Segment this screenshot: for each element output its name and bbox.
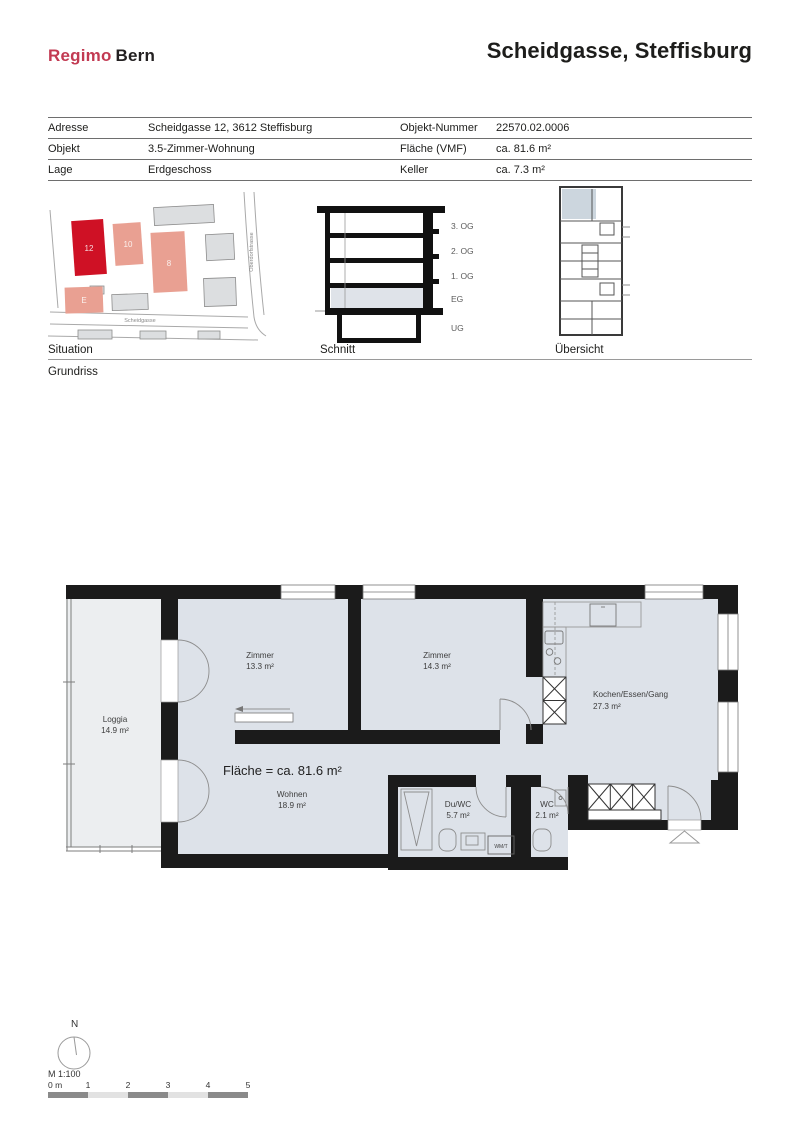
scale-bar-segment [128, 1092, 168, 1098]
situation-map: 12 10 8 E Scheidgasse Oberdorfstrasse [48, 190, 298, 348]
section-drawing: 3. OG 2. OG 1. OG EG UG [315, 200, 487, 350]
scale-tick: 0 m [48, 1080, 62, 1090]
floorplan-document-page: RegimoBern Scheidgasse, Steffisburg Adre… [0, 0, 800, 1126]
window-top-3 [645, 585, 703, 599]
floor-label-eg: EG [451, 294, 463, 304]
row-label: Keller [400, 164, 496, 176]
scale-tick: 4 [206, 1080, 211, 1090]
overview-highlighted-unit [562, 189, 596, 219]
room-area: 14.9 m² [101, 726, 129, 735]
room-name: Du/WC [445, 800, 471, 809]
row-label: Objekt-Nummer [400, 122, 496, 134]
french-door-opening-2 [161, 760, 178, 822]
info-table: Adresse Scheidgasse 12, 3612 Steffisburg… [48, 117, 752, 181]
scale-label: M 1:100 [48, 1069, 81, 1079]
schnitt-label: Schnitt [320, 344, 355, 356]
room-area: 14.3 m² [423, 662, 451, 671]
scale-tick: 1 [86, 1080, 91, 1090]
divider-line [48, 359, 752, 360]
floor-label-1og: 1. OG [451, 271, 474, 281]
scale-bar-segment [88, 1092, 128, 1098]
room-name: Zimmer [423, 651, 451, 660]
floor-label-ug: UG [451, 323, 464, 333]
row-value: 22570.02.0006 [496, 122, 752, 134]
row-value: 3.5-Zimmer-Wohnung [148, 143, 400, 155]
logo: RegimoBern [48, 46, 155, 66]
window-top-1 [281, 585, 335, 599]
building-10-label: 10 [124, 240, 133, 249]
overview-balcony-ticks [622, 227, 630, 295]
street-label-scheidgasse: Scheidgasse [124, 318, 156, 324]
room-area: 13.3 m² [246, 662, 274, 671]
scale-bar [48, 1092, 248, 1098]
row-value: ca. 81.6 m² [496, 143, 752, 155]
window-right-1 [718, 614, 738, 670]
building-12-label: 12 [85, 244, 94, 253]
page-title: Scheidgasse, Steffisburg [487, 38, 752, 64]
row-label: Fläche (VMF) [400, 143, 496, 155]
wardrobe [588, 784, 661, 820]
room-area: 2.1 m² [535, 811, 558, 820]
room-name: Wohnen [277, 790, 308, 799]
row-label: Adresse [48, 122, 148, 134]
room-name: Loggia [103, 715, 128, 724]
floor-label-2og: 2. OG [451, 246, 474, 256]
french-door-opening-1 [161, 640, 178, 702]
table-row: Objekt 3.5-Zimmer-Wohnung Fläche (VMF) c… [48, 138, 752, 159]
scale-tick: 2 [126, 1080, 131, 1090]
row-value: Scheidgasse 12, 3612 Steffisburg [148, 122, 400, 134]
uebersicht-label: Übersicht [555, 344, 604, 356]
room-name: Zimmer [246, 651, 274, 660]
building-E-label: E [81, 296, 86, 305]
grundriss-section-label: Grundriss [48, 366, 98, 378]
row-label: Objekt [48, 143, 148, 155]
scale-bar-segment [168, 1092, 208, 1098]
total-area-label: Fläche = ca. 81.6 m² [223, 763, 343, 778]
entrance-triangle-icon [670, 831, 699, 843]
window-top-2 [363, 585, 415, 599]
compass-circle-icon [58, 1037, 90, 1069]
row-value: ca. 7.3 m² [496, 164, 752, 176]
row-label: Lage [48, 164, 148, 176]
floorplan-drawing: Zimmer 13.3 m² Zimmer 14.3 m² Kochen/Ess… [60, 574, 740, 879]
scale-tick: 5 [246, 1080, 251, 1090]
shaft-boxes [543, 677, 566, 724]
street-label-oberdorfstrasse: Oberdorfstrasse [249, 232, 255, 271]
scale-bar-segment [48, 1092, 88, 1098]
building-8-label: 8 [167, 259, 172, 268]
situation-label: Situation [48, 344, 93, 356]
table-row: Adresse Scheidgasse 12, 3612 Steffisburg… [48, 117, 752, 138]
logo-primary: Regimo [48, 46, 112, 65]
room-area: 27.3 m² [593, 702, 621, 711]
scale-bar-segment [208, 1092, 248, 1098]
room-area: 18.9 m² [278, 801, 306, 810]
window-right-2 [718, 702, 738, 772]
overview-plan [548, 183, 633, 348]
section-floor-labels: 3. OG 2. OG 1. OG EG UG [451, 221, 474, 333]
compass-needle-icon [74, 1037, 77, 1055]
north-label: N [71, 1019, 78, 1030]
section-structure [317, 206, 445, 343]
row-value: Erdgeschoss [148, 164, 400, 176]
floor-label-3og: 3. OG [451, 221, 474, 231]
table-row: Lage Erdgeschoss Keller ca. 7.3 m² [48, 159, 752, 181]
room-area: 5.7 m² [446, 811, 469, 820]
logo-secondary: Bern [116, 46, 156, 65]
appliance-label: WM/T [494, 844, 507, 850]
room-name: WC [540, 800, 554, 809]
room-name: Kochen/Essen/Gang [593, 690, 669, 699]
scale-tick: 3 [166, 1080, 171, 1090]
